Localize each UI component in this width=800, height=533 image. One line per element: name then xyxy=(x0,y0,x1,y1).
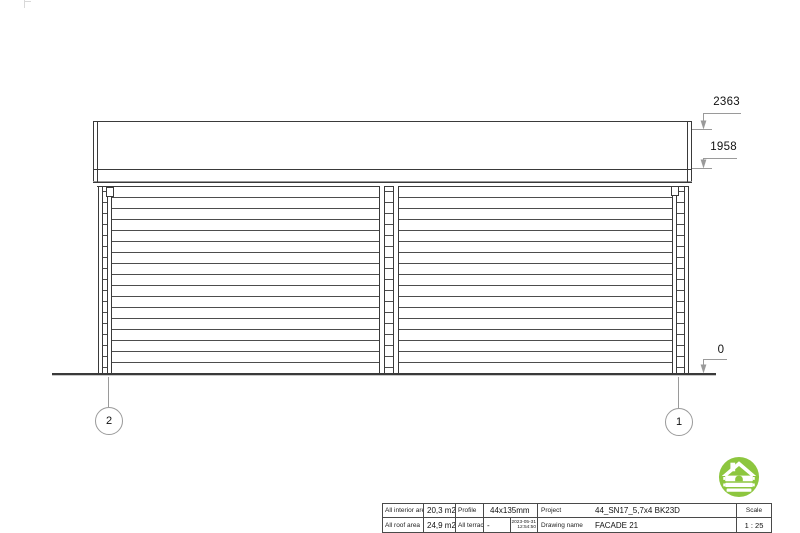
terrace-label-cell: All terrace xyxy=(456,518,484,532)
interior-area-value-cell: 20,3 m2 xyxy=(424,504,456,518)
left-outer-post xyxy=(98,187,103,374)
axis-marker-1: 1 xyxy=(665,408,693,436)
drawing-name-value: FACADE 21 xyxy=(587,521,638,530)
project-cell: Project 44_SN17_5,7x4 BK23D xyxy=(538,504,737,518)
profile-label-cell: Profile xyxy=(456,504,484,518)
project-value: 44_SN17_5,7x4 BK23D xyxy=(587,506,680,515)
roof-area-label-cell: All roof area xyxy=(383,518,424,532)
fascia-right-inner-line xyxy=(687,121,688,183)
arrow-down-icon xyxy=(701,121,707,130)
log-cabin-house-icon xyxy=(718,456,760,498)
dimension-ground: 0 xyxy=(711,344,731,356)
middle-right-post xyxy=(393,186,399,374)
title-block: All interior area 20,3 m2 Profile 44x135… xyxy=(382,503,772,533)
right-inner-post xyxy=(672,187,677,374)
right-corner-log-ends xyxy=(677,187,684,374)
roof-fascia xyxy=(93,121,692,183)
scale-label: Scale xyxy=(746,507,762,514)
profile-label: Profile xyxy=(456,507,476,514)
timestamp-cell: 2023-05-31 12:54:50 xyxy=(511,518,538,532)
scale-value-cell: 1 : 25 xyxy=(737,518,771,532)
terrace-value: - xyxy=(484,521,490,530)
middle-left-post xyxy=(379,186,385,374)
left-post-top-stub xyxy=(106,187,114,197)
roof-area-value-cell: 24,9 m2 xyxy=(424,518,456,532)
ground-line-shadow xyxy=(52,375,716,376)
axis-2-number: 2 xyxy=(106,415,112,427)
profile-value: 44x135mm xyxy=(484,506,530,515)
wall-right-section-planks xyxy=(399,187,672,374)
fascia-left-inner-line xyxy=(97,121,98,183)
right-outer-post xyxy=(684,187,689,374)
project-label: Project xyxy=(538,507,587,514)
middle-joint-log-ends xyxy=(385,187,393,374)
dimension-roof-top: 2363 xyxy=(694,96,740,108)
interior-area-label-cell: All interior area xyxy=(383,504,424,518)
drawing-name-cell: Drawing name FACADE 21 xyxy=(538,518,737,532)
profile-value-cell: 44x135mm xyxy=(484,504,538,518)
roof-area-label: All roof area xyxy=(383,522,420,529)
scale-label-cell: Scale xyxy=(737,504,771,518)
facade-drawing-sheet: 2363 1958 0 2 1 All interior area xyxy=(0,0,800,533)
axis-marker-2: 2 xyxy=(95,407,123,435)
terrace-label: All terrace xyxy=(456,522,484,529)
axis-1-leader-line xyxy=(678,377,679,408)
timestamp-time: 12:54:50 xyxy=(511,525,536,531)
axis-1-number: 1 xyxy=(676,416,682,428)
terrace-value-cell: - xyxy=(484,518,511,532)
fascia-trim-line xyxy=(93,181,692,182)
interior-area-label: All interior area xyxy=(383,507,424,514)
roof-area-value: 24,9 m2 xyxy=(424,521,456,530)
drawing-name-label: Drawing name xyxy=(538,522,587,529)
left-inner-post xyxy=(107,187,112,374)
crop-mark-horizontal xyxy=(24,1,31,2)
right-post-top-stub xyxy=(671,186,679,196)
fascia-bottom-edge-line xyxy=(93,169,692,170)
interior-area-value: 20,3 m2 xyxy=(424,506,456,515)
wall-left-section-planks xyxy=(112,187,380,374)
dimension-eave: 1958 xyxy=(691,141,737,153)
arrow-down-icon xyxy=(701,160,707,169)
axis-2-leader-line xyxy=(108,377,109,407)
scale-value: 1 : 25 xyxy=(745,521,764,530)
